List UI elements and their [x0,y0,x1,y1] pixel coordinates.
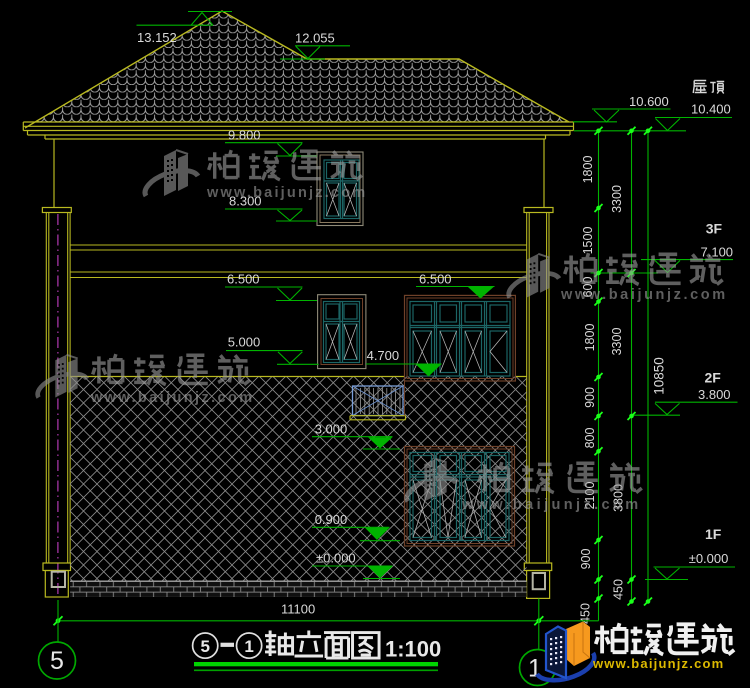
svg-text:1:100: 1:100 [385,637,441,662]
svg-text:3300: 3300 [610,185,624,213]
svg-text:6.500: 6.500 [419,272,452,287]
svg-text:900: 900 [583,387,597,408]
svg-text:1800: 1800 [583,324,597,352]
svg-text:www.baijunjz.com: www.baijunjz.com [90,390,255,406]
svg-text:10.400: 10.400 [691,102,731,117]
svg-text:1800: 1800 [581,156,595,184]
svg-text:www.baijunjz.com: www.baijunjz.com [206,185,367,201]
svg-text:5.000: 5.000 [228,335,261,350]
svg-text:6.500: 6.500 [227,272,260,287]
svg-text:450: 450 [612,579,626,600]
svg-text:www.baijunjz.com: www.baijunjz.com [592,656,724,671]
svg-text:1: 1 [244,637,253,656]
svg-text:5: 5 [50,647,64,675]
svg-text:3.800: 3.800 [698,387,731,402]
svg-text:7.100: 7.100 [701,245,734,260]
svg-text:1500: 1500 [581,227,595,255]
svg-text:11100: 11100 [281,602,315,617]
svg-text:www.baijunjz.com: www.baijunjz.com [560,287,728,303]
svg-text:800: 800 [583,428,597,449]
svg-text:12.055: 12.055 [295,31,335,46]
svg-text:www.baijunjz.com: www.baijunjz.com [461,497,642,513]
svg-text:9.800: 9.800 [228,128,261,143]
svg-text:2F: 2F [705,370,722,386]
svg-text:3300: 3300 [610,328,624,356]
svg-text:3F: 3F [706,221,723,237]
svg-text:10.600: 10.600 [629,94,669,109]
svg-text:900: 900 [579,549,593,570]
svg-text:3.000: 3.000 [315,422,348,437]
svg-text:0.900: 0.900 [315,512,348,527]
svg-text:13.152: 13.152 [137,30,177,45]
svg-text:1F: 1F [705,526,722,542]
svg-text:4.700: 4.700 [367,348,400,363]
svg-text:±0.000: ±0.000 [316,551,356,566]
svg-text:±0.000: ±0.000 [689,551,729,566]
svg-text:10850: 10850 [652,357,667,395]
svg-text:5: 5 [200,637,209,656]
